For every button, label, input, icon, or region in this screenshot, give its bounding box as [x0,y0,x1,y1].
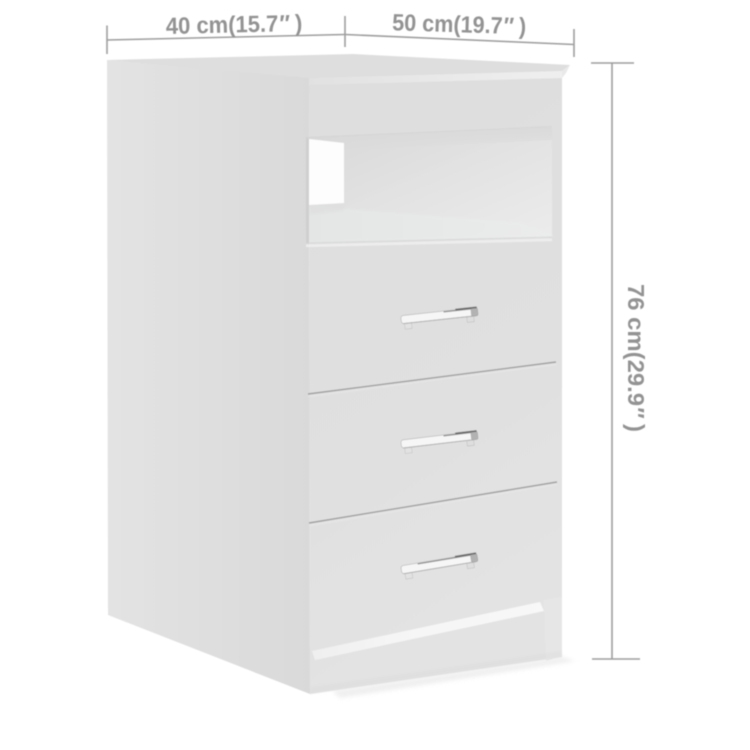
svg-text:40 cm(15.7″ ): 40 cm(15.7″ ) [166,10,303,39]
svg-text:50 cm(19.7″ ): 50 cm(19.7″ ) [392,9,527,39]
svg-text:76 cm(29.9″ ): 76 cm(29.9″ ) [623,284,649,432]
